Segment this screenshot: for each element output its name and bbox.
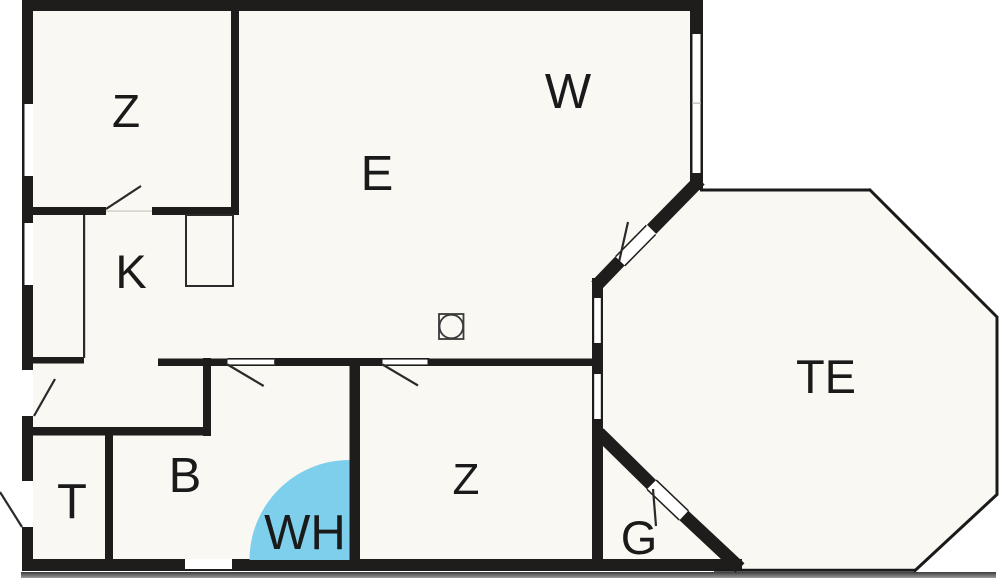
svg-text:Z: Z: [112, 85, 140, 137]
svg-text:T: T: [57, 475, 87, 529]
svg-text:Z: Z: [453, 455, 480, 504]
svg-text:E: E: [361, 147, 394, 201]
svg-text:K: K: [115, 245, 146, 298]
svg-text:WH: WH: [264, 506, 346, 560]
svg-text:G: G: [621, 511, 658, 564]
svg-text:TE: TE: [796, 350, 856, 403]
svg-text:B: B: [169, 449, 202, 503]
svg-text:W: W: [545, 65, 592, 119]
